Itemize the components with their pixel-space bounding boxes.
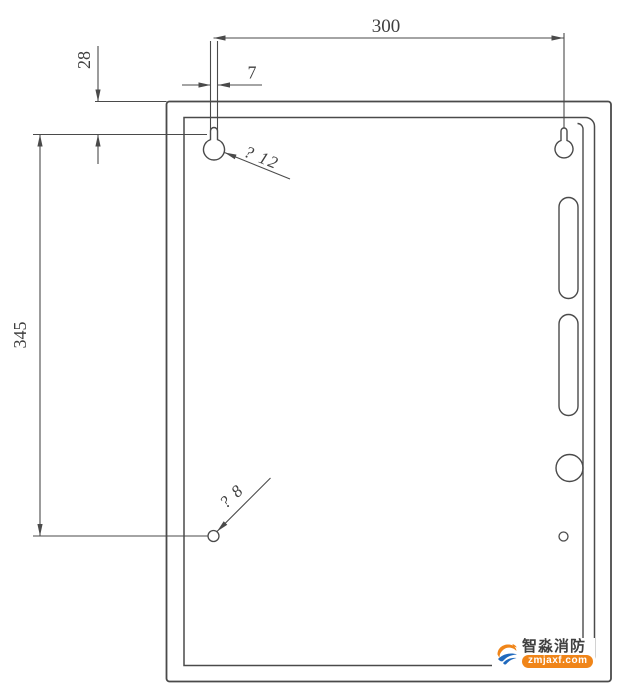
keyhole-right [555,128,573,158]
arrow-7-right [218,82,230,87]
dimension-arrowheads [37,35,563,536]
arrow-28-top [95,90,100,102]
cabinet-inner-panel-outline [184,118,595,666]
vent-slot-upper [559,198,578,299]
dimension-drawing-svg: 300 7 28 345 ? 12 ? 8 [0,0,625,696]
vent-slot-lower [559,315,578,416]
mounting-hole-bottom-left [208,531,219,542]
keyhole-left [204,128,225,160]
brand-site-badge: zmjaxf.com [522,655,593,668]
leader-label-hole-diameter: ? 8 [216,480,248,511]
brand-logo-icon [494,641,520,667]
arrow-345-top [37,135,42,147]
brand-name: 智淼消防 [522,639,586,654]
dim-label-7: 7 [248,63,257,83]
arrow-leader-keyhole [225,153,237,160]
dim-label-300: 300 [372,16,401,37]
cabinet-outer-outline [167,102,612,682]
dim-label-345: 345 [10,322,30,349]
small-hole-right [559,532,568,541]
arrow-345-bottom [37,524,42,536]
arrow-7-left [199,82,211,87]
arrow-300-right [552,35,564,40]
leader-label-keyhole-diameter: ? 12 [242,142,282,173]
brand-watermark: 智淼消防 zmjaxf.com [492,638,595,669]
technical-drawing-canvas: 300 7 28 345 ? 12 ? 8 智淼消防 zmjaxf.com [0,0,625,696]
cable-hole-circle [556,455,583,482]
arrow-28-bottom [95,135,100,147]
dimension-lines [33,33,564,536]
dim-label-28: 28 [74,51,94,69]
arrow-300-left [214,35,226,40]
